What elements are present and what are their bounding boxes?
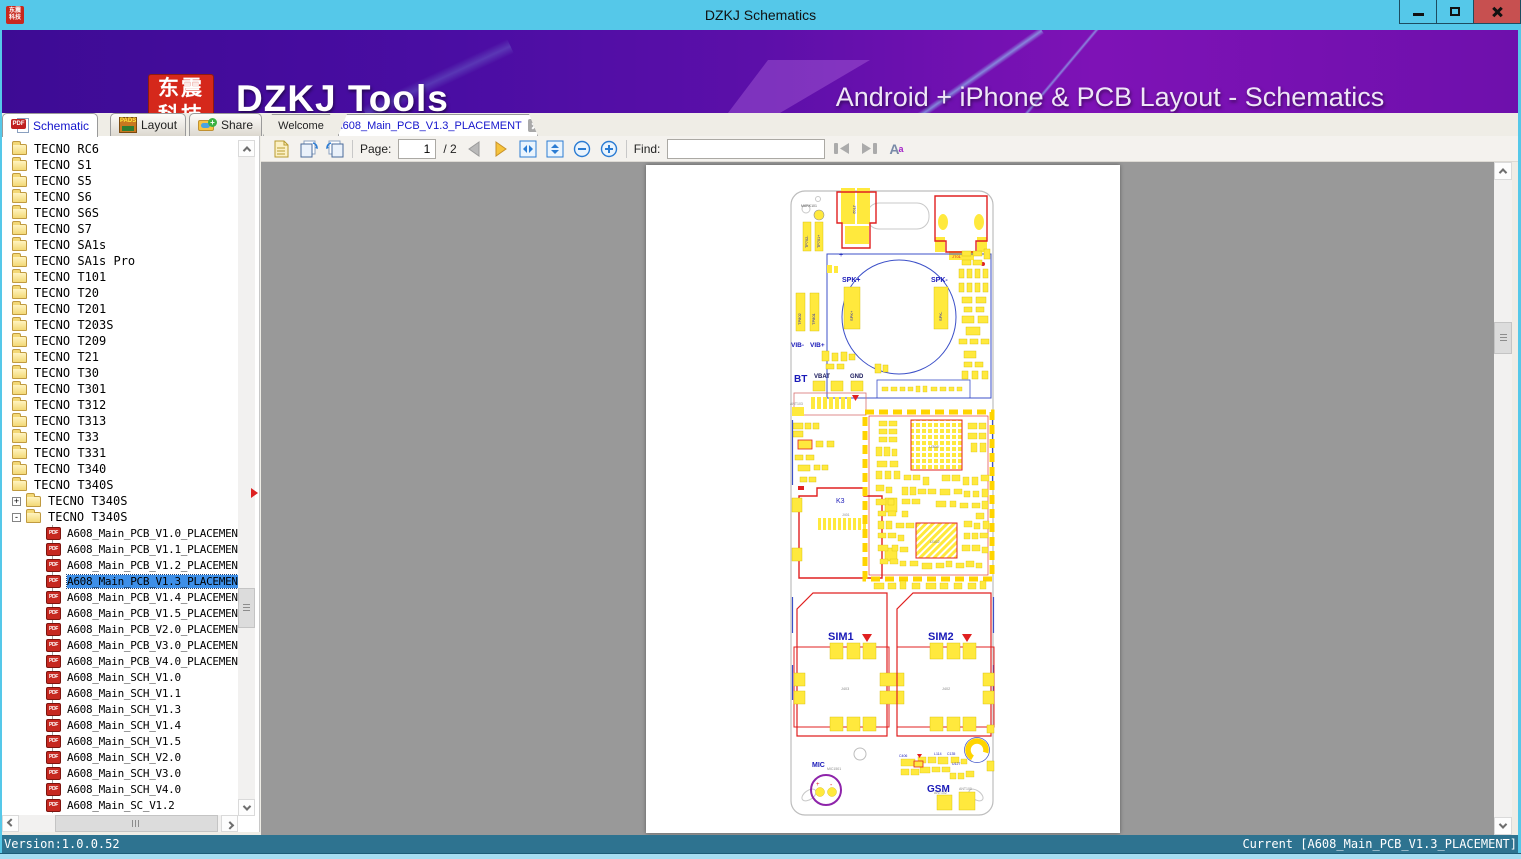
- tree-subfolder-row[interactable]: -TECNO T340S: [2, 509, 236, 525]
- tree-folder-row[interactable]: TECNO S6: [2, 189, 236, 205]
- svg-text:MIC: MIC: [812, 762, 825, 769]
- svg-text:ANT103: ANT103: [790, 402, 803, 406]
- tree-file-row[interactable]: PDFA608_Main_PCB_V1.1_PLACEMENT: [2, 541, 236, 557]
- tree-file-label: A608_Main_SCH_V2.0: [67, 751, 181, 764]
- document-viewport: JT02 + MARK101 TP702- TP701+ JT01: [261, 162, 1494, 835]
- fit-width-button[interactable]: [518, 139, 538, 159]
- folder-icon: [12, 192, 27, 203]
- doc-tab-welcome-label: Welcome: [278, 120, 324, 132]
- svg-text:TP801: TP801: [811, 312, 816, 325]
- folder-icon: [12, 256, 27, 267]
- svg-text:TP701+: TP701+: [817, 234, 821, 248]
- find-label: Find:: [634, 142, 661, 156]
- pdf-icon: PDF: [46, 655, 61, 668]
- tab-layout-label: Layout: [141, 118, 177, 132]
- tree-file-row[interactable]: PDFA608_Main_PCB_V1.2_PLACEMENT: [2, 557, 236, 573]
- status-bar-strip: [0, 853, 1521, 859]
- pdf-icon: PDF: [46, 639, 61, 652]
- chevron-down-icon: [1499, 820, 1507, 828]
- viewer-scroll-down-button[interactable]: [1494, 817, 1512, 835]
- collapse-icon[interactable]: -: [12, 513, 21, 522]
- svg-text:VIB+: VIB+: [810, 342, 825, 349]
- svg-text:MARK101: MARK101: [801, 204, 817, 208]
- pdf-icon: PDF: [46, 623, 61, 636]
- svg-text:U308: U308: [929, 444, 939, 449]
- tree-vscrollbar-track[interactable]: [238, 140, 255, 816]
- tree-folder-label: TECNO S6: [34, 190, 92, 204]
- folder-icon: [12, 176, 27, 187]
- svg-text:+: +: [816, 782, 820, 788]
- toolbar-separator: [352, 140, 353, 158]
- close-tab-icon[interactable]: [528, 119, 541, 132]
- folder-icon: [12, 288, 27, 299]
- svg-text:SPK-: SPK-: [938, 311, 943, 321]
- find-next-button[interactable]: [859, 139, 879, 159]
- tree-folder-label: TECNO T203S: [34, 318, 113, 332]
- folder-icon: [12, 240, 27, 251]
- tree-folder-row[interactable]: TECNO T301: [2, 381, 236, 397]
- page-thumbnail-button[interactable]: [271, 139, 291, 159]
- tree-file-label: A608_Main_PCB_V1.4_PLACEMENT: [67, 591, 244, 604]
- pcb-placement-drawing: JT02 + MARK101 TP702- TP701+ JT01: [646, 165, 1120, 833]
- svg-text:+: +: [839, 252, 843, 259]
- pdf-icon: PDF: [46, 607, 61, 620]
- tree-folder-label: TECNO SA1s Pro: [34, 254, 135, 268]
- tree-file-row[interactable]: PDFA608_Main_SCH_V1.5: [2, 733, 236, 749]
- tree-file-label: A608_Main_SCH_V4.0: [67, 783, 181, 796]
- banner-tagline: Android + iPhone & PCB Layout - Schemati…: [790, 82, 1430, 113]
- tree-file-label: A608_Main_SCH_V1.5: [67, 735, 181, 748]
- chevron-up-icon: [1499, 168, 1507, 176]
- tree-folder-label: TECNO S7: [34, 222, 92, 236]
- viewer-vscrollbar-track[interactable]: [1494, 162, 1512, 835]
- tree-folder-row[interactable]: TECNO S5: [2, 173, 236, 189]
- tree-folder-row[interactable]: TECNO RC6: [2, 141, 236, 157]
- tree-file-row[interactable]: PDFA608_Main_PCB_V1.0_PLACEMENT: [2, 525, 236, 541]
- window-title: DZKJ Schematics: [0, 7, 1521, 23]
- tree-subfolder-row[interactable]: +TECNO T340S: [2, 493, 236, 509]
- tree-folder-label: TECNO T201: [34, 302, 106, 316]
- tree-file-label: A608_Main_SC_V1.2: [67, 799, 174, 812]
- tree-folder-label: TECNO T21: [34, 350, 99, 364]
- tree-folder-label: TECNO T312: [34, 398, 106, 412]
- previous-page-button[interactable]: [464, 139, 484, 159]
- tree-file-row[interactable]: PDFA608_Main_SC_V1.2: [2, 797, 236, 813]
- tree-file-row[interactable]: PDFA608_Main_PCB_V1.3_PLACEMENT: [2, 573, 236, 589]
- tree-subfolder-label: TECNO T340S: [48, 494, 127, 508]
- tree-file-row[interactable]: PDFA608_Main_SCH_V1.0: [2, 669, 236, 685]
- file-tree: TECNO RC6TECNO S1TECNO S5TECNO S6TECNO S…: [2, 141, 236, 813]
- tree-file-label: A608_Main_SCH_V1.0: [67, 671, 181, 684]
- tree-folder-row[interactable]: TECNO T101: [2, 269, 236, 285]
- status-bar: Version:1.0.0.52 Current [A608_Main_PCB_…: [0, 835, 1521, 853]
- svg-text:SIM1: SIM1: [828, 631, 854, 643]
- tree-file-label: A608_Main_PCB_V2.0_PLACEMENT: [67, 623, 244, 636]
- svg-text:C406: C406: [899, 754, 907, 758]
- svg-text:J401: J401: [842, 513, 850, 517]
- svg-text:J403: J403: [841, 687, 849, 691]
- splitter-collapse-arrow[interactable]: [251, 488, 258, 498]
- tree-file-row[interactable]: PDFA608_Main_SCH_V2.0: [2, 749, 236, 765]
- window-border-left: [0, 30, 2, 853]
- folder-icon: [26, 496, 41, 507]
- pads-icon: PADS: [119, 117, 137, 133]
- tree-folder-row[interactable]: TECNO SA1s: [2, 237, 236, 253]
- pdf-page: JT02 + MARK101 TP702- TP701+ JT01: [646, 165, 1120, 833]
- pdf-toolbar: Page: / 2 Find: Aa: [261, 136, 1518, 162]
- tab-schematic[interactable]: PDF Schematic: [2, 113, 98, 137]
- chevron-right-icon: [225, 821, 233, 829]
- folder-icon: [12, 480, 27, 491]
- tree-folder-label: TECNO T340S: [34, 478, 113, 492]
- tree-folder-row[interactable]: TECNO S7: [2, 221, 236, 237]
- folder-icon: [12, 304, 27, 315]
- brand-logo: 东震科技: [148, 74, 214, 113]
- tree-folder-label: TECNO T30: [34, 366, 99, 380]
- tree-folder-row[interactable]: TECNO T340S: [2, 477, 236, 493]
- title-bar: 东震科技 DZKJ Schematics: [0, 0, 1521, 30]
- tab-share-label: Share: [221, 118, 253, 132]
- viewer-vscrollbar-thumb[interactable]: [1494, 322, 1512, 354]
- svg-text:C135: C135: [947, 752, 955, 756]
- tree-file-row[interactable]: PDFA608_Main_SCH_V1.4: [2, 717, 236, 733]
- pdf-icon: PDF: [11, 118, 29, 133]
- find-input[interactable]: [667, 139, 825, 159]
- pdf-icon: PDF: [46, 751, 61, 764]
- tree-file-row[interactable]: PDFA608_Main_PCB_V2.0_PLACEMENT: [2, 621, 236, 637]
- tree-file-row[interactable]: PDFA608_Main_PCB_V1.5_PLACEMENT: [2, 605, 236, 621]
- tree-folder-row[interactable]: TECNO T33: [2, 429, 236, 445]
- tree-file-label: A608_Main_SCH_V1.1: [67, 687, 181, 700]
- svg-text:K3: K3: [836, 498, 845, 505]
- next-page-button[interactable]: [491, 139, 511, 159]
- rotate-right-button[interactable]: [325, 139, 345, 159]
- pdf-icon: PDF: [46, 799, 61, 812]
- tree-file-row[interactable]: PDFA608_Main_SCH_V3.0: [2, 765, 236, 781]
- tree-folder-row[interactable]: TECNO T21: [2, 349, 236, 365]
- pdf-icon: PDF: [46, 527, 61, 540]
- tree-folder-label: TECNO S6S: [34, 206, 99, 220]
- pdf-icon: PDF: [46, 783, 61, 796]
- tree-file-label: A608_Main_PCB_V4.0_PLACEMENT: [67, 655, 244, 668]
- tree-folder-label: TECNO T331: [34, 446, 106, 460]
- svg-text:SPK+: SPK+: [842, 277, 860, 284]
- current-document-text: Current [A608_Main_PCB_V1.3_PLACEMENT]: [1242, 837, 1517, 851]
- version-text: Version:1.0.0.52: [4, 837, 120, 851]
- tree-folder-row[interactable]: TECNO T201: [2, 301, 236, 317]
- tree-folder-row[interactable]: TECNO T340: [2, 461, 236, 477]
- doc-tab-current-label: A608_Main_PCB_V1.3_PLACEMENT: [335, 120, 521, 132]
- brand-name: DZKJ Tools: [236, 78, 449, 113]
- tree-folder-label: TECNO S5: [34, 174, 92, 188]
- svg-text:SPK-: SPK-: [931, 277, 948, 284]
- folder-icon: [12, 208, 27, 219]
- folder-icon: [12, 368, 27, 379]
- svg-text:L114: L114: [934, 752, 942, 756]
- tree-folder-label: TECNO T301: [34, 382, 106, 396]
- minimize-button[interactable]: [1400, 0, 1437, 23]
- maximize-icon: [1450, 7, 1460, 16]
- app-window: 东震科技 DZKJ Schematics 东震科技 DZKJ Tools And…: [0, 0, 1521, 859]
- folder-icon: [12, 336, 27, 347]
- tree-scroll-up-button[interactable]: [238, 140, 255, 157]
- tree-folder-label: TECNO T340: [34, 462, 106, 476]
- folder-icon: [12, 448, 27, 459]
- match-case-button[interactable]: Aa: [886, 139, 906, 159]
- rotate-left-button[interactable]: [298, 139, 318, 159]
- tree-folder-row[interactable]: TECNO T313: [2, 413, 236, 429]
- folder-icon: [12, 352, 27, 363]
- tree-file-label: A608_Main_SCH_V1.3: [67, 703, 181, 716]
- pdf-icon: PDF: [46, 687, 61, 700]
- minimize-icon: [1413, 13, 1424, 16]
- folder-icon: [12, 400, 27, 411]
- tree-folder-label: TECNO RC6: [34, 142, 99, 156]
- sidebar: TECNO RC6TECNO S1TECNO S5TECNO S6TECNO S…: [2, 136, 260, 832]
- chevron-up-icon: [242, 146, 250, 154]
- svg-text:J402: J402: [942, 687, 950, 691]
- tree-folder-row[interactable]: TECNO S6S: [2, 205, 236, 221]
- tab-strip: PDF Schematic PADS Layout + Share Welcom…: [0, 113, 1521, 136]
- svg-text:VIB-: VIB-: [791, 342, 804, 349]
- tree-file-row[interactable]: PDFA608_Main_SCH_V1.1: [2, 685, 236, 701]
- pdf-icon: PDF: [46, 559, 61, 572]
- page-total: / 2: [443, 142, 456, 156]
- tree-folder-row[interactable]: TECNO S1: [2, 157, 236, 173]
- window-controls: [1399, 0, 1521, 24]
- folder-icon: [12, 384, 27, 395]
- viewer-scroll-up-button[interactable]: [1494, 162, 1512, 180]
- zoom-out-button[interactable]: [572, 139, 592, 159]
- svg-text:TP802: TP802: [797, 312, 802, 325]
- tree-subfolder-label: TECNO T340S: [48, 510, 127, 524]
- tree-file-label-selected: A608_Main_PCB_V1.3_PLACEMENT: [67, 575, 244, 588]
- tree-folder-row[interactable]: TECNO SA1s Pro: [2, 253, 236, 269]
- tree-file-label: A608_Main_PCB_V1.5_PLACEMENT: [67, 607, 244, 620]
- scroll-grip-icon: [132, 820, 141, 827]
- tree-hscrollbar-thumb[interactable]: [55, 815, 218, 832]
- tree-file-label: A608_Main_PCB_V1.2_PLACEMENT: [67, 559, 244, 572]
- doc-tab-welcome[interactable]: Welcome: [263, 114, 339, 136]
- svg-text:ANT102: ANT102: [934, 791, 947, 795]
- tab-layout[interactable]: PADS Layout: [110, 113, 186, 136]
- folder-icon: [12, 224, 27, 235]
- tree-file-label: A608_Main_PCB_V1.0_PLACEMENT: [67, 527, 244, 540]
- svg-text:VBAT: VBAT: [814, 374, 830, 380]
- tree-file-label: A608_Main_SCH_V1.4: [67, 719, 181, 732]
- svg-text:ANT100: ANT100: [959, 787, 972, 791]
- tree-folder-row[interactable]: TECNO T312: [2, 397, 236, 413]
- chevron-left-icon: [6, 818, 14, 826]
- page-label: Page:: [360, 142, 391, 156]
- svg-text:U127: U127: [952, 762, 960, 766]
- tree-folder-row[interactable]: TECNO T331: [2, 445, 236, 461]
- svg-text:SPK+: SPK+: [849, 310, 854, 321]
- pdf-icon: PDF: [46, 703, 61, 716]
- expand-icon[interactable]: +: [12, 497, 21, 506]
- pdf-icon: PDF: [46, 671, 61, 684]
- folder-icon: [12, 144, 27, 155]
- case-icon-a: a: [898, 144, 903, 154]
- maximize-button[interactable]: [1437, 0, 1474, 23]
- tree-file-row[interactable]: PDFA608_Main_PCB_V3.0_PLACEMENT: [2, 637, 236, 653]
- toolbar-separator: [626, 140, 627, 158]
- tree-folder-label: TECNO T33: [34, 430, 99, 444]
- tree-scroll-left-button[interactable]: [2, 815, 19, 832]
- tree-hscrollbar-track[interactable]: [2, 815, 238, 832]
- tree-folder-label: TECNO T209: [34, 334, 106, 348]
- svg-text:TP702-: TP702-: [805, 235, 809, 248]
- pdf-icon: PDF: [46, 575, 61, 588]
- fit-page-button[interactable]: [545, 139, 565, 159]
- tree-file-row[interactable]: PDFA608_Main_PCB_V1.4_PLACEMENT: [2, 589, 236, 605]
- tree-file-label: A608_Main_SCH_V3.0: [67, 767, 181, 780]
- tree-folder-row[interactable]: TECNO T209: [2, 333, 236, 349]
- svg-text:GND: GND: [850, 374, 864, 380]
- tree-folder-label: TECNO T313: [34, 414, 106, 428]
- folder-icon: [12, 416, 27, 427]
- folder-icon: [12, 432, 27, 443]
- tree-file-row[interactable]: PDFA608_Main_SCH_V4.0: [2, 781, 236, 797]
- tree-folder-label: TECNO T101: [34, 270, 106, 284]
- folder-icon: [12, 320, 27, 331]
- tab-schematic-label: Schematic: [33, 119, 89, 133]
- tree-folder-label: TECNO T20: [34, 286, 99, 300]
- tab-share[interactable]: + Share: [189, 113, 262, 136]
- scroll-grip-icon: [1500, 334, 1507, 343]
- svg-text:JT01: JT01: [952, 254, 962, 259]
- close-button[interactable]: [1474, 0, 1520, 23]
- svg-text:U102: U102: [930, 539, 940, 544]
- tree-folder-label: TECNO SA1s: [34, 238, 106, 252]
- zoom-in-button[interactable]: [599, 139, 619, 159]
- page-number-input[interactable]: [398, 139, 436, 159]
- tree-folder-row[interactable]: TECNO T20: [2, 285, 236, 301]
- close-icon: [1491, 6, 1503, 18]
- share-folder-icon: +: [198, 118, 217, 132]
- tree-file-row[interactable]: PDFA608_Main_PCB_V4.0_PLACEMENT: [2, 653, 236, 669]
- doc-tab-current[interactable]: A608_Main_PCB_V1.3_PLACEMENT: [338, 114, 538, 136]
- tree-folder-row[interactable]: TECNO T30: [2, 365, 236, 381]
- scroll-grip-icon: [243, 604, 250, 613]
- tree-file-label: A608_Main_PCB_V3.0_PLACEMENT: [67, 639, 244, 652]
- chevron-down-icon: [242, 802, 250, 810]
- pdf-icon: PDF: [46, 735, 61, 748]
- pdf-icon: PDF: [46, 719, 61, 732]
- tree-file-row[interactable]: PDFA608_Main_SCH_V1.3: [2, 701, 236, 717]
- folder-icon: [26, 512, 41, 523]
- header-banner: 东震科技 DZKJ Tools Android + iPhone & PCB L…: [0, 30, 1521, 113]
- pdf-icon: PDF: [46, 591, 61, 604]
- tree-folder-label: TECNO S1: [34, 158, 92, 172]
- svg-text:BT: BT: [794, 374, 807, 385]
- tree-scroll-right-button[interactable]: [221, 815, 238, 832]
- folder-icon: [12, 160, 27, 171]
- tree-scroll-down-button[interactable]: [238, 799, 255, 816]
- folder-icon: [12, 272, 27, 283]
- folder-icon: [12, 464, 27, 475]
- svg-text:JT02: JT02: [852, 205, 857, 215]
- find-previous-button[interactable]: [832, 139, 852, 159]
- svg-text:SIM2: SIM2: [928, 631, 954, 643]
- pdf-icon: PDF: [46, 767, 61, 780]
- pdf-icon: PDF: [46, 543, 61, 556]
- svg-text:MIC1501: MIC1501: [827, 767, 841, 771]
- tree-file-label: A608_Main_PCB_V1.1_PLACEMENT: [67, 543, 244, 556]
- tree-folder-row[interactable]: TECNO T203S: [2, 317, 236, 333]
- tree-vscrollbar-thumb[interactable]: [238, 588, 255, 628]
